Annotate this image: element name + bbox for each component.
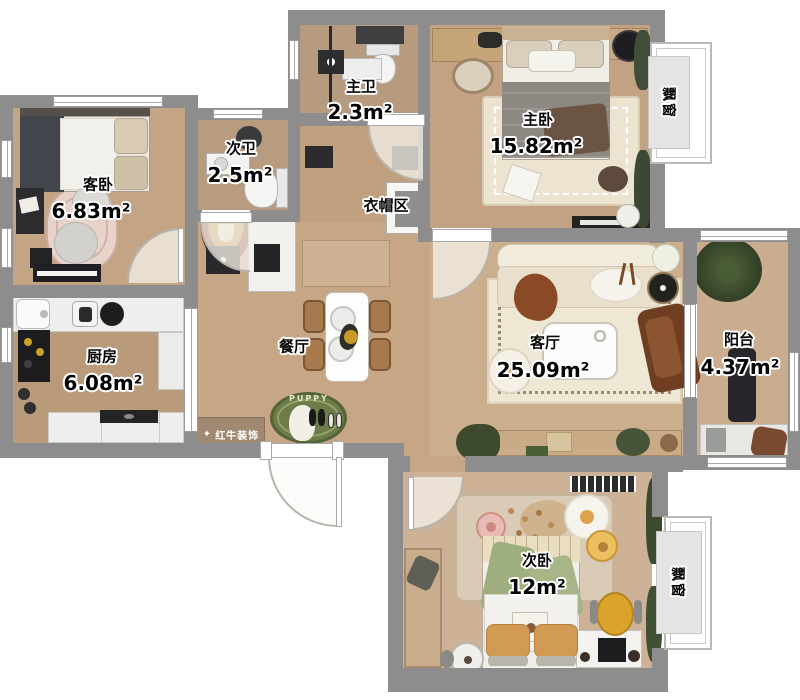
- balcony-gray-item: [706, 428, 726, 452]
- entry-door-swing: [268, 457, 338, 527]
- second-pillow-2: [534, 624, 578, 658]
- second-desk-item-1: [580, 652, 590, 662]
- wall-second-bedroom-bottom: [388, 668, 668, 692]
- living-speaker: [647, 272, 679, 304]
- window-guest-top: [53, 96, 163, 107]
- wall-bottom-left: [0, 443, 262, 458]
- master-bedroom-door-leaf: [432, 229, 492, 242]
- wall-second-bedroom-right-upper: [652, 472, 668, 517]
- second-pillow-1: [486, 624, 530, 658]
- master-bath-towel-rack: [356, 26, 404, 44]
- coffee-table-ring: [594, 330, 606, 342]
- puppy-rug-shoe-1: [309, 409, 316, 426]
- living-speaker-dot: [660, 285, 666, 291]
- room-label-master-bath: 主卫: [346, 76, 376, 97]
- window-balcony-top: [700, 230, 788, 241]
- wall-kitchen-door-stub-bottom: [184, 432, 198, 443]
- kitchen-faucet: [40, 310, 48, 318]
- dining-chair-top-left: [303, 300, 325, 333]
- puppy-rug-shoe-2: [318, 409, 325, 426]
- window-second-bath-top: [213, 109, 263, 119]
- area-label-master-bath: 2.3m²: [327, 100, 392, 124]
- cloakroom-black-box: [305, 146, 333, 168]
- room-label-guest-bedroom: 客卧: [83, 174, 113, 195]
- wall-second-bedroom-right-lower: [652, 648, 668, 692]
- room-label-dining: 餐厅: [279, 336, 309, 357]
- kitchen-rice-cooker: [72, 301, 98, 327]
- guest-pillow-1: [114, 118, 148, 154]
- wall-right-outer: [788, 228, 800, 470]
- balcony-palm-plant: [694, 238, 762, 302]
- wall-top-main: [288, 10, 665, 25]
- window-kitchen-left: [1, 327, 12, 363]
- stove-burner-1: [24, 338, 32, 346]
- master-pouf: [598, 166, 628, 192]
- console-lamp: [660, 434, 678, 452]
- puppy-rug-shoe-3: [328, 413, 334, 428]
- room-label-cloakroom: 衣帽区: [363, 195, 408, 216]
- master-fan: [616, 204, 640, 228]
- floor-plan: PUPPY ✦ 红牛装饰: [0, 0, 800, 700]
- living-plant-right: [616, 428, 650, 456]
- area-label-kitchen: 6.08m²: [64, 371, 143, 395]
- lounge-chair-cushion: [644, 315, 684, 380]
- sofa-swan-cushion: [590, 268, 642, 302]
- kitchen-bottle-2: [24, 402, 36, 414]
- guest-headboard-shelf: [20, 108, 150, 116]
- wall-master-bottom-r: [491, 228, 665, 242]
- second-chair-arm-right: [634, 600, 642, 624]
- cloakroom-cabinet: [302, 240, 390, 287]
- console-frame: [546, 432, 572, 452]
- master-bath-pipe: [329, 26, 332, 110]
- window-balcony-bottom: [707, 457, 787, 468]
- second-pillow-fringe-1: [488, 656, 528, 666]
- area-label-guest-bedroom: 6.83m²: [52, 199, 131, 223]
- master-desk-items: [478, 32, 502, 48]
- second-laptop: [598, 638, 626, 662]
- brand-logo-text: 红牛装饰: [215, 427, 259, 442]
- room-label-kitchen: 厨房: [87, 346, 117, 367]
- master-bath-valve: [324, 70, 337, 73]
- window-balcony-right: [789, 352, 799, 432]
- master-rattan-chair: [452, 58, 494, 94]
- room-label-balcony: 阳台: [724, 329, 754, 350]
- kitchen-cabinet-seam-2: [159, 413, 160, 442]
- wall-guest-divider: [185, 108, 198, 298]
- brand-logo-icon: ✦: [203, 429, 211, 440]
- tv-console: [488, 430, 682, 456]
- wall-bottom-mid: [344, 443, 404, 458]
- stove-burner-3: [24, 360, 32, 368]
- second-wardrobe-accent: [405, 554, 441, 592]
- wall-balcony-divider-bottom: [683, 398, 697, 458]
- puppy-rug-shoe-4: [336, 413, 342, 428]
- room-label-master-bedroom: 主卧: [523, 109, 553, 130]
- wall-second-bedroom-left: [388, 458, 403, 692]
- kitchen-hood-vent: [124, 414, 134, 419]
- second-flower-pink-center: [486, 522, 496, 532]
- second-ac-unit: [570, 476, 636, 492]
- guest-bed-dark-blanket: [20, 116, 64, 192]
- second-petals-scatter: [508, 508, 514, 514]
- second-round-table-center: [464, 656, 472, 664]
- kitchen-hood: [100, 410, 158, 423]
- kitchen-rice-cooker-lid: [79, 307, 92, 322]
- second-bedroom-door-leaf: [408, 477, 414, 530]
- area-label-balcony: 4.37m²: [701, 355, 780, 379]
- living-side-table: [652, 244, 680, 272]
- dining-chair-bottom-right: [369, 338, 391, 371]
- second-flower-yellow-center: [598, 542, 608, 552]
- hall-black-seat: [254, 244, 280, 272]
- area-label-second-bath: 2.5m²: [207, 163, 272, 187]
- window-guest-left-1: [1, 140, 12, 178]
- second-bath-door-leaf: [200, 212, 252, 223]
- guest-bedroom-door-leaf: [178, 228, 184, 283]
- wall-guest-bottom: [0, 285, 198, 298]
- guest-ottoman: [54, 222, 98, 264]
- second-yellow-chair: [596, 592, 634, 636]
- second-flower-yellow: [586, 530, 618, 562]
- kitchen-pot: [100, 302, 124, 326]
- master-bed-headboard: [502, 26, 610, 40]
- second-flower-daisy-center: [580, 510, 594, 524]
- guest-piano: [33, 264, 101, 282]
- master-pillow-center: [528, 50, 576, 72]
- wall-balcony-divider-top: [683, 242, 697, 304]
- dining-yellow-dish: [344, 330, 358, 344]
- area-label-second-bedroom: 12m²: [508, 575, 565, 599]
- guest-pillow-2: [114, 156, 148, 190]
- dining-chair-top-right: [369, 300, 391, 333]
- wall-master-bottom-l: [418, 228, 432, 242]
- wall-second-bedroom-top-l: [403, 456, 410, 472]
- second-chair-arm-left: [590, 600, 598, 624]
- window-guest-left-2: [1, 228, 12, 268]
- wall-kitchen-door-stub-top: [184, 298, 198, 308]
- stove-burner-2: [36, 348, 44, 356]
- second-kettle: [440, 650, 454, 668]
- area-label-master-bedroom: 15.82m²: [490, 134, 583, 158]
- wall-second-bedroom-top-r: [465, 456, 683, 472]
- wall-second-bath-bottom-r: [250, 210, 300, 222]
- kitchen-sliding-door: [184, 308, 198, 432]
- second-wardrobe: [404, 548, 442, 668]
- kitchen-bottle-1: [18, 388, 30, 400]
- area-label-living: 25.09m²: [497, 358, 590, 382]
- puppy-rug-text: PUPPY: [289, 394, 329, 403]
- label-bay-window-top: 飘窗: [659, 87, 679, 119]
- kitchen-stove: [18, 330, 50, 382]
- second-pillow-fringe-2: [536, 656, 576, 666]
- master-tv-screen: [580, 220, 620, 225]
- guest-piano-keys: [37, 271, 97, 276]
- kitchen-fridge: [158, 332, 184, 390]
- entry-door-leaf: [336, 457, 342, 527]
- window-master-bath-left: [289, 40, 299, 80]
- room-label-second-bedroom: 次卧: [522, 550, 552, 571]
- label-bay-window-bottom: 飘窗: [668, 567, 688, 599]
- room-label-second-bath: 次卫: [226, 138, 256, 159]
- second-desk-item-2: [628, 650, 640, 662]
- room-label-living: 客厅: [530, 332, 560, 353]
- entry-door-frame-left: [260, 441, 272, 460]
- balcony-sliding-door: [684, 304, 696, 398]
